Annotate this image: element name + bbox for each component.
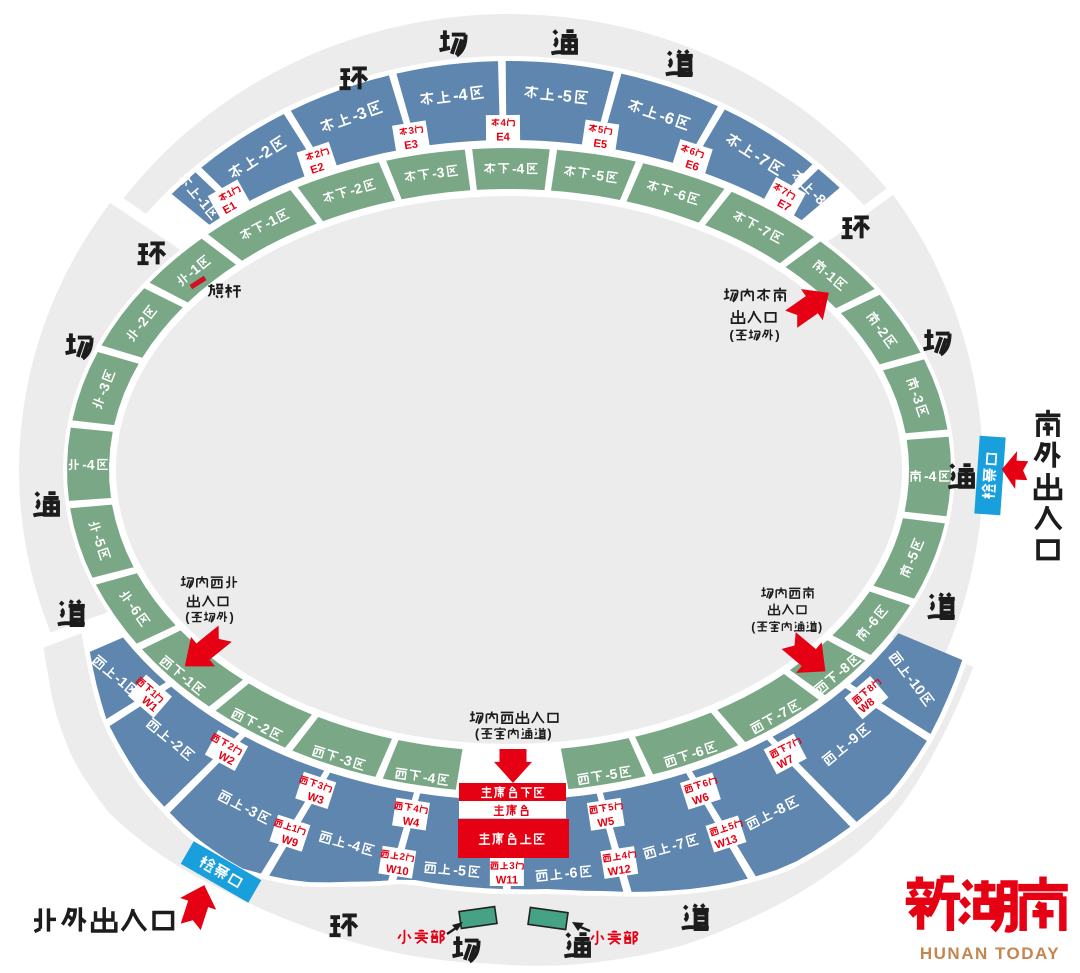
svg-text:): ) [775, 328, 779, 343]
svg-text:): ) [547, 726, 551, 741]
svg-text:-5: -5 [556, 87, 572, 106]
svg-text:): ) [229, 610, 233, 625]
svg-text:-5: -5 [452, 863, 466, 880]
svg-text:HUNAN TODAY: HUNAN TODAY [920, 944, 1060, 963]
svg-text:3: 3 [509, 861, 515, 872]
svg-text:-4: -4 [82, 457, 95, 472]
svg-text:E4: E4 [496, 131, 511, 143]
svg-text:): ) [818, 620, 822, 634]
svg-text:-4: -4 [422, 770, 437, 787]
svg-text:-4: -4 [452, 86, 469, 106]
svg-text:-5: -5 [591, 167, 606, 184]
svg-text:-4: -4 [924, 469, 937, 484]
svg-text:-4: -4 [512, 161, 525, 176]
svg-text:(: ( [475, 726, 480, 741]
svg-text:E3: E3 [403, 138, 418, 152]
svg-text:W5: W5 [597, 816, 615, 830]
svg-text:4: 4 [500, 118, 506, 129]
svg-text:-3: -3 [431, 165, 445, 182]
svg-text:(: ( [185, 610, 190, 625]
svg-text:(: ( [729, 328, 734, 343]
svg-text:W11: W11 [496, 874, 518, 886]
svg-text:-6: -6 [564, 865, 578, 882]
svg-text:E5: E5 [593, 137, 608, 151]
